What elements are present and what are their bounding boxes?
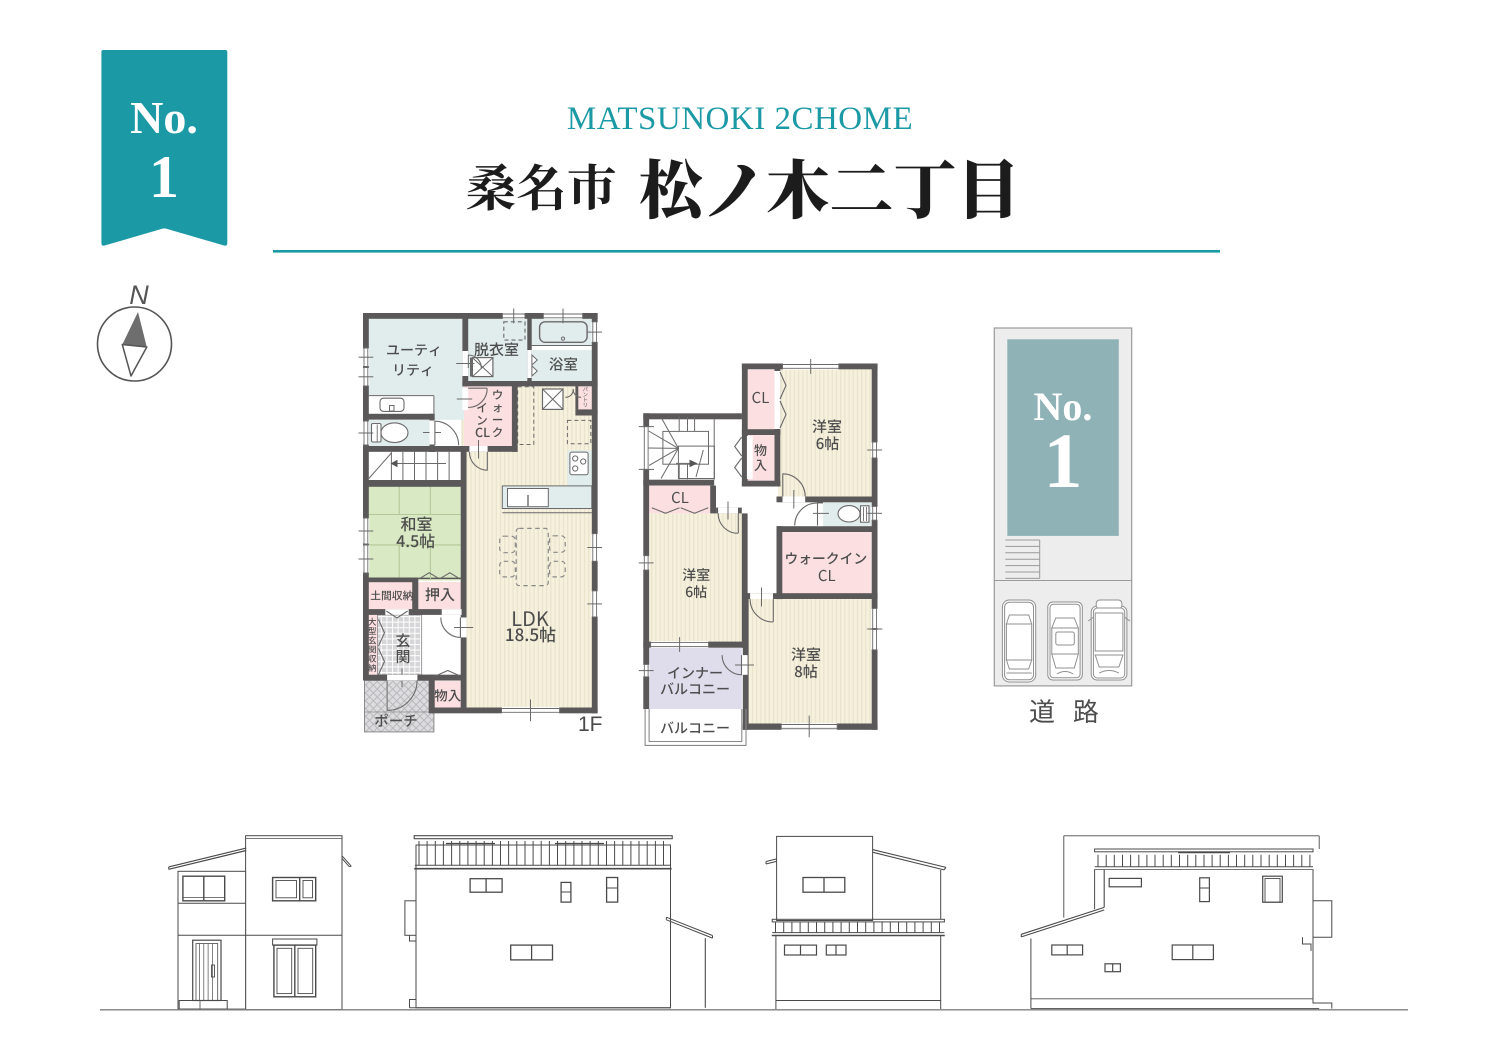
svg-text:No.: No. <box>130 92 198 143</box>
svg-text:MATSUNOKI 2CHOME: MATSUNOKI 2CHOME <box>567 101 913 137</box>
svg-text:1F: 1F <box>578 713 603 736</box>
svg-text:N: N <box>129 280 149 310</box>
svg-text:1: 1 <box>1044 417 1083 504</box>
svg-text:1: 1 <box>149 144 179 210</box>
